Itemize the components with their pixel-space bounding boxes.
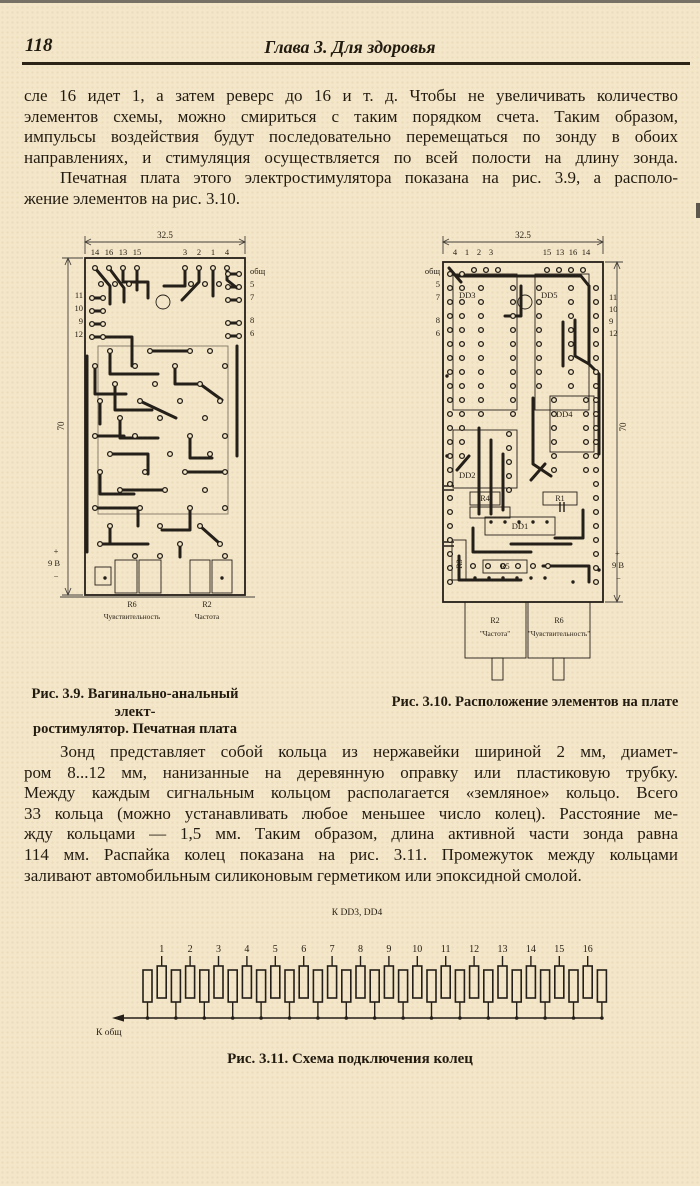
pin-label: 3: [489, 247, 493, 257]
pad: [98, 542, 103, 547]
pad: [448, 552, 453, 557]
signal-ring: [441, 966, 450, 998]
r2-ref: R2: [202, 600, 211, 609]
pad: [594, 314, 599, 319]
r6-ref: R6: [127, 600, 136, 609]
fig-3-10-placement-drawing: 32.5 70 4 1 2 3 15 13 16 14 общ 5 7 8 6 …: [413, 226, 700, 688]
trace: [162, 508, 190, 530]
trace: [543, 566, 589, 582]
arrow-left-icon: [112, 1014, 124, 1021]
ground-ring: [512, 970, 521, 1002]
pad: [569, 300, 574, 305]
pad: [594, 440, 599, 445]
potentiometers: R2 "Частота" R6 "Чувствительность": [465, 602, 590, 680]
pin-label: 1: [465, 247, 469, 257]
ground-ring: [257, 970, 266, 1002]
pad: [584, 468, 589, 473]
pad: [594, 468, 599, 473]
text-line: Печатная плата этого электростимулятора …: [24, 168, 678, 189]
pad: [138, 399, 143, 404]
signal-ring: [186, 966, 195, 998]
ground-ring: [171, 970, 180, 1002]
ground-ring: [484, 970, 493, 1002]
power-labels: + 9 В −: [48, 546, 60, 581]
pad: [594, 384, 599, 389]
pad: [511, 356, 516, 361]
r5-label: R5: [500, 562, 509, 571]
pad: [217, 282, 222, 287]
pin-label: 15: [133, 247, 142, 257]
fig310-height-dim: 70: [618, 422, 628, 432]
header-rule: [22, 62, 690, 65]
paragraph-block-2: Зонд представляет собой кольца из нержав…: [24, 742, 678, 886]
ground-ring: [370, 970, 379, 1002]
pad: [93, 364, 98, 369]
pad: [511, 328, 516, 333]
voltage-label: 9 В: [48, 558, 60, 568]
top-pin-numbers: 14 16 13 15 3 2 1 4: [91, 247, 230, 257]
pad: [448, 314, 453, 319]
pad: [569, 314, 574, 319]
pin-label: 14: [582, 247, 591, 257]
pad: [93, 266, 98, 271]
pad: [460, 370, 465, 375]
signal-ring: [328, 966, 337, 998]
minus-label: −: [616, 573, 621, 583]
pad: [486, 564, 491, 569]
pad: [158, 524, 163, 529]
r2-name: Частота: [195, 612, 220, 621]
pad: [226, 272, 231, 277]
pad: [237, 334, 242, 339]
pad: [226, 298, 231, 303]
ground-ring: [399, 970, 408, 1002]
r6-ref: R6: [554, 616, 563, 625]
pad: [581, 268, 586, 273]
text-line: жду кольцами — 1,5 мм. Таким образом, дл…: [24, 824, 678, 845]
pad: [101, 335, 106, 340]
pad: [101, 309, 106, 314]
text-line: 33 кольца (можно устанавливать любое мен…: [24, 804, 678, 825]
pad: [594, 300, 599, 305]
pin-label: 12: [75, 329, 84, 339]
potentiometer-labels: R6 Чувствительность R2 Частота: [104, 600, 220, 621]
pad: [511, 384, 516, 389]
dd1-label: DD1: [512, 521, 529, 531]
dd5-label: DD5: [541, 290, 558, 300]
plus-label: +: [54, 546, 59, 556]
pad: [188, 434, 193, 439]
pad: [552, 426, 557, 431]
pad: [537, 314, 542, 319]
pad: [537, 356, 542, 361]
pad: [188, 506, 193, 511]
pad: [108, 524, 113, 529]
pin-label: 5: [250, 279, 254, 289]
pad: [183, 470, 188, 475]
ring-number: 7: [330, 944, 335, 955]
pad: [99, 282, 104, 287]
pad: [594, 524, 599, 529]
pad: [546, 564, 551, 569]
pad: [448, 426, 453, 431]
fig39-width-dim: 32.5: [157, 230, 173, 240]
pad: [90, 309, 95, 314]
pin-label: 13: [556, 247, 565, 257]
fig-3-9-caption: Рис. 3.9. Вагинально-анальный элект- рос…: [24, 686, 246, 739]
pad: [552, 468, 557, 473]
paragraph-block-1: сле 16 идет 1, а затем реверс до 16 и т.…: [24, 86, 678, 210]
pad: [471, 564, 476, 569]
pad: [121, 266, 126, 271]
pad: [237, 272, 242, 277]
pad: [198, 524, 203, 529]
pad: [479, 412, 484, 417]
signal-ring: [271, 966, 280, 998]
pad: [218, 542, 223, 547]
pad: [237, 298, 242, 303]
pad: [537, 342, 542, 347]
pad: [460, 384, 465, 389]
pad: [479, 286, 484, 291]
pad: [237, 285, 242, 290]
pad: [479, 398, 484, 403]
pad: [101, 322, 106, 327]
pad: [98, 470, 103, 475]
pad: [569, 286, 574, 291]
book-page: 118 Глава 3. Для здоровья сле 16 идет 1,…: [0, 0, 700, 1186]
pad: [594, 398, 599, 403]
pin-label: 8: [436, 315, 440, 325]
ground-ring: [200, 970, 209, 1002]
to-common-label: К общ: [96, 1027, 122, 1038]
pad: [90, 322, 95, 327]
pad: [198, 382, 203, 387]
ground-ring: [597, 970, 606, 1002]
pad: [211, 266, 216, 271]
pin-label: 9: [79, 316, 83, 326]
pad: [90, 335, 95, 340]
trace: [555, 510, 583, 538]
pad: [507, 460, 512, 465]
dd2-label: DD2: [459, 470, 476, 480]
pad: [183, 266, 188, 271]
trace: [110, 351, 158, 374]
pad: [98, 399, 103, 404]
pad: [584, 440, 589, 445]
mounting-hole: [156, 295, 170, 309]
pad: [178, 399, 183, 404]
pad: [133, 434, 138, 439]
text-line: Между каждым сигнальным кольцом располаг…: [24, 783, 678, 804]
plus-label: +: [615, 548, 620, 558]
component-outlines: [444, 274, 594, 580]
ring-number: 6: [301, 944, 306, 955]
text-line: сле 16 идет 1, а затем реверс до 16 и т.…: [24, 86, 678, 107]
pad: [594, 538, 599, 543]
via-dot: [531, 520, 534, 523]
pad: [223, 434, 228, 439]
pin-label: 13: [119, 247, 128, 257]
pad: [108, 349, 113, 354]
pin-label: 11: [75, 290, 83, 300]
ring-number: 14: [526, 944, 536, 955]
pad: [448, 496, 453, 501]
ground-ring: [143, 970, 152, 1002]
pad: [448, 482, 453, 487]
pad: [511, 286, 516, 291]
trace: [115, 384, 152, 410]
r1-label: R1: [555, 494, 564, 503]
pad: [594, 426, 599, 431]
pad: [594, 454, 599, 459]
pad: [237, 321, 242, 326]
pad: [448, 300, 453, 305]
pad: [557, 268, 562, 273]
pad: [127, 282, 132, 287]
text-line: жение элементов на рис. 3.10.: [24, 189, 678, 210]
pad: [226, 334, 231, 339]
pad: [223, 554, 228, 559]
pad: [460, 328, 465, 333]
pad: [594, 580, 599, 585]
pad: [168, 452, 173, 457]
pad: [511, 300, 516, 305]
ground-ring: [427, 970, 436, 1002]
pad: [118, 488, 123, 493]
pad: [90, 296, 95, 301]
pad: [484, 268, 489, 273]
pad: [460, 356, 465, 361]
pad: [113, 282, 118, 287]
pad: [460, 272, 465, 277]
pad: [552, 454, 557, 459]
ring-number: 2: [188, 944, 193, 955]
text-line: направлениях, и стимуляция осуществляетс…: [24, 148, 678, 169]
signal-ring: [413, 966, 422, 998]
pad: [584, 426, 589, 431]
via-dot: [473, 576, 476, 579]
pad: [511, 314, 516, 319]
pin-label: 2: [197, 247, 201, 257]
pin-label: 9: [609, 316, 613, 326]
pad: [138, 506, 143, 511]
pad: [507, 474, 512, 479]
ring-number: 5: [273, 944, 278, 955]
pad: [594, 328, 599, 333]
via-dot: [503, 520, 506, 523]
fig-3-10-caption: Рис. 3.10. Расположение элементов на пла…: [370, 694, 700, 712]
pad: [594, 496, 599, 501]
ring-number: 9: [386, 944, 391, 955]
via-dot: [103, 576, 106, 579]
pad: [223, 506, 228, 511]
pad: [594, 412, 599, 417]
pad: [552, 398, 557, 403]
pad: [108, 452, 113, 457]
r3-label: R3: [455, 559, 464, 568]
pad: [479, 300, 484, 305]
ring-number: 16: [583, 944, 593, 955]
ring-number: 1: [159, 944, 164, 955]
pad: [448, 510, 453, 515]
ground-ring: [228, 970, 237, 1002]
pad: [448, 384, 453, 389]
pad: [594, 552, 599, 557]
top-pin-numbers: 4 1 2 3 15 13 16 14: [453, 247, 591, 257]
to-dd3-dd4-label: К DD3, DD4: [332, 908, 383, 918]
signal-ring: [384, 966, 393, 998]
pad: [107, 266, 112, 271]
pad: [479, 370, 484, 375]
pad: [537, 384, 542, 389]
pin-label: 1: [211, 247, 215, 257]
pad: [472, 268, 477, 273]
pad: [594, 510, 599, 515]
pad: [511, 342, 516, 347]
ring-number: 11: [441, 944, 451, 955]
pad: [448, 398, 453, 403]
caption-line: ростимулятор. Печатная плата: [24, 721, 246, 739]
pad: [178, 542, 183, 547]
pad: [448, 412, 453, 417]
pad: [448, 524, 453, 529]
pad: [594, 286, 599, 291]
pad: [197, 266, 202, 271]
pad: [569, 356, 574, 361]
pad: [594, 356, 599, 361]
pin-label: 7: [436, 292, 440, 302]
pad: [203, 416, 208, 421]
pad: [148, 349, 153, 354]
via-dot: [445, 454, 448, 457]
pin-label: 15: [543, 247, 552, 257]
pad: [208, 452, 213, 457]
pad: [153, 382, 158, 387]
trace: [95, 508, 138, 526]
scan-edge-tick: [696, 203, 700, 218]
trace: [473, 528, 531, 552]
pad: [448, 566, 453, 571]
via-dot: [487, 576, 490, 579]
pad: [448, 468, 453, 473]
trace: [164, 268, 185, 286]
pad: [537, 328, 542, 333]
chapter-header: Глава 3. Для здоровья: [0, 37, 700, 58]
pad: [93, 434, 98, 439]
pad: [569, 328, 574, 333]
pad: [226, 285, 231, 290]
pad: [208, 349, 213, 354]
ring-number: 3: [216, 944, 221, 955]
fig-3-9-pcb-drawing: 32.5 70 14 16 13 15 3 2 1 4 общ 5 7 8 6 …: [40, 226, 340, 676]
pad: [173, 364, 178, 369]
signal-ring: [583, 966, 592, 998]
pad: [584, 454, 589, 459]
ring-number: 10: [412, 944, 422, 955]
via-dot: [571, 580, 574, 583]
pad: [460, 398, 465, 403]
pad: [158, 554, 163, 559]
pad: [584, 398, 589, 403]
pad: [460, 314, 465, 319]
pad: [448, 356, 453, 361]
pad: [479, 384, 484, 389]
pad: [448, 580, 453, 585]
ring-number: 13: [498, 944, 508, 955]
via-dot: [597, 568, 600, 571]
via-dot: [545, 520, 548, 523]
r6-name: "Чувствительность": [528, 629, 590, 638]
pin-label: 4: [225, 247, 230, 257]
signal-ring: [526, 966, 535, 998]
ground-ring: [285, 970, 294, 1002]
pad: [101, 296, 106, 301]
ring-number: 12: [469, 944, 479, 955]
r4-label: R4: [480, 494, 489, 503]
pin-label: 14: [91, 247, 100, 257]
pad: [203, 488, 208, 493]
trace: [575, 320, 589, 364]
pin-label: 16: [569, 247, 578, 257]
minus-label: −: [54, 571, 59, 581]
pin-label: 11: [609, 292, 617, 302]
dd3-label: DD3: [459, 290, 476, 300]
pad: [448, 342, 453, 347]
pad: [223, 470, 228, 475]
pin-label: 10: [75, 303, 84, 313]
pad: [569, 268, 574, 273]
pad: [225, 266, 230, 271]
pad: [507, 488, 512, 493]
pad: [569, 384, 574, 389]
fig39-height-dim: 70: [56, 421, 66, 431]
signal-ring: [157, 966, 166, 998]
signal-ring: [470, 966, 479, 998]
voltage-label: 9 В: [612, 560, 624, 570]
signal-ring: [299, 966, 308, 998]
text-line: элементов схемы, можно смириться с таким…: [24, 107, 678, 128]
pad: [163, 488, 168, 493]
pad: [143, 470, 148, 475]
ring-number: 15: [554, 944, 564, 955]
pad: [113, 382, 118, 387]
pad: [496, 268, 501, 273]
rings: 12345678910111213141516: [143, 944, 606, 1020]
pad: [460, 454, 465, 459]
via-dot: [489, 520, 492, 523]
power-labels: + 9 В −: [612, 548, 624, 583]
pad: [448, 272, 453, 277]
pad: [569, 370, 574, 375]
via-dot: [220, 576, 223, 579]
r2-ref: R2: [490, 616, 499, 625]
trace: [175, 366, 198, 384]
pad: [218, 399, 223, 404]
pad: [203, 282, 208, 287]
bottom-components: [95, 560, 232, 593]
signal-ring: [242, 966, 251, 998]
trace: [200, 384, 222, 400]
ground-ring: [313, 970, 322, 1002]
fig-3-11-ring-diagram: К DD3, DD4 12345678910111213141516 К общ: [90, 898, 620, 1043]
pin-label: 4: [453, 247, 458, 257]
pad: [226, 321, 231, 326]
text-line: заливают автомобильным силиконовым герме…: [24, 866, 678, 887]
pad: [460, 300, 465, 305]
r2-name: "Частота": [480, 629, 510, 638]
ground-ring: [569, 970, 578, 1002]
